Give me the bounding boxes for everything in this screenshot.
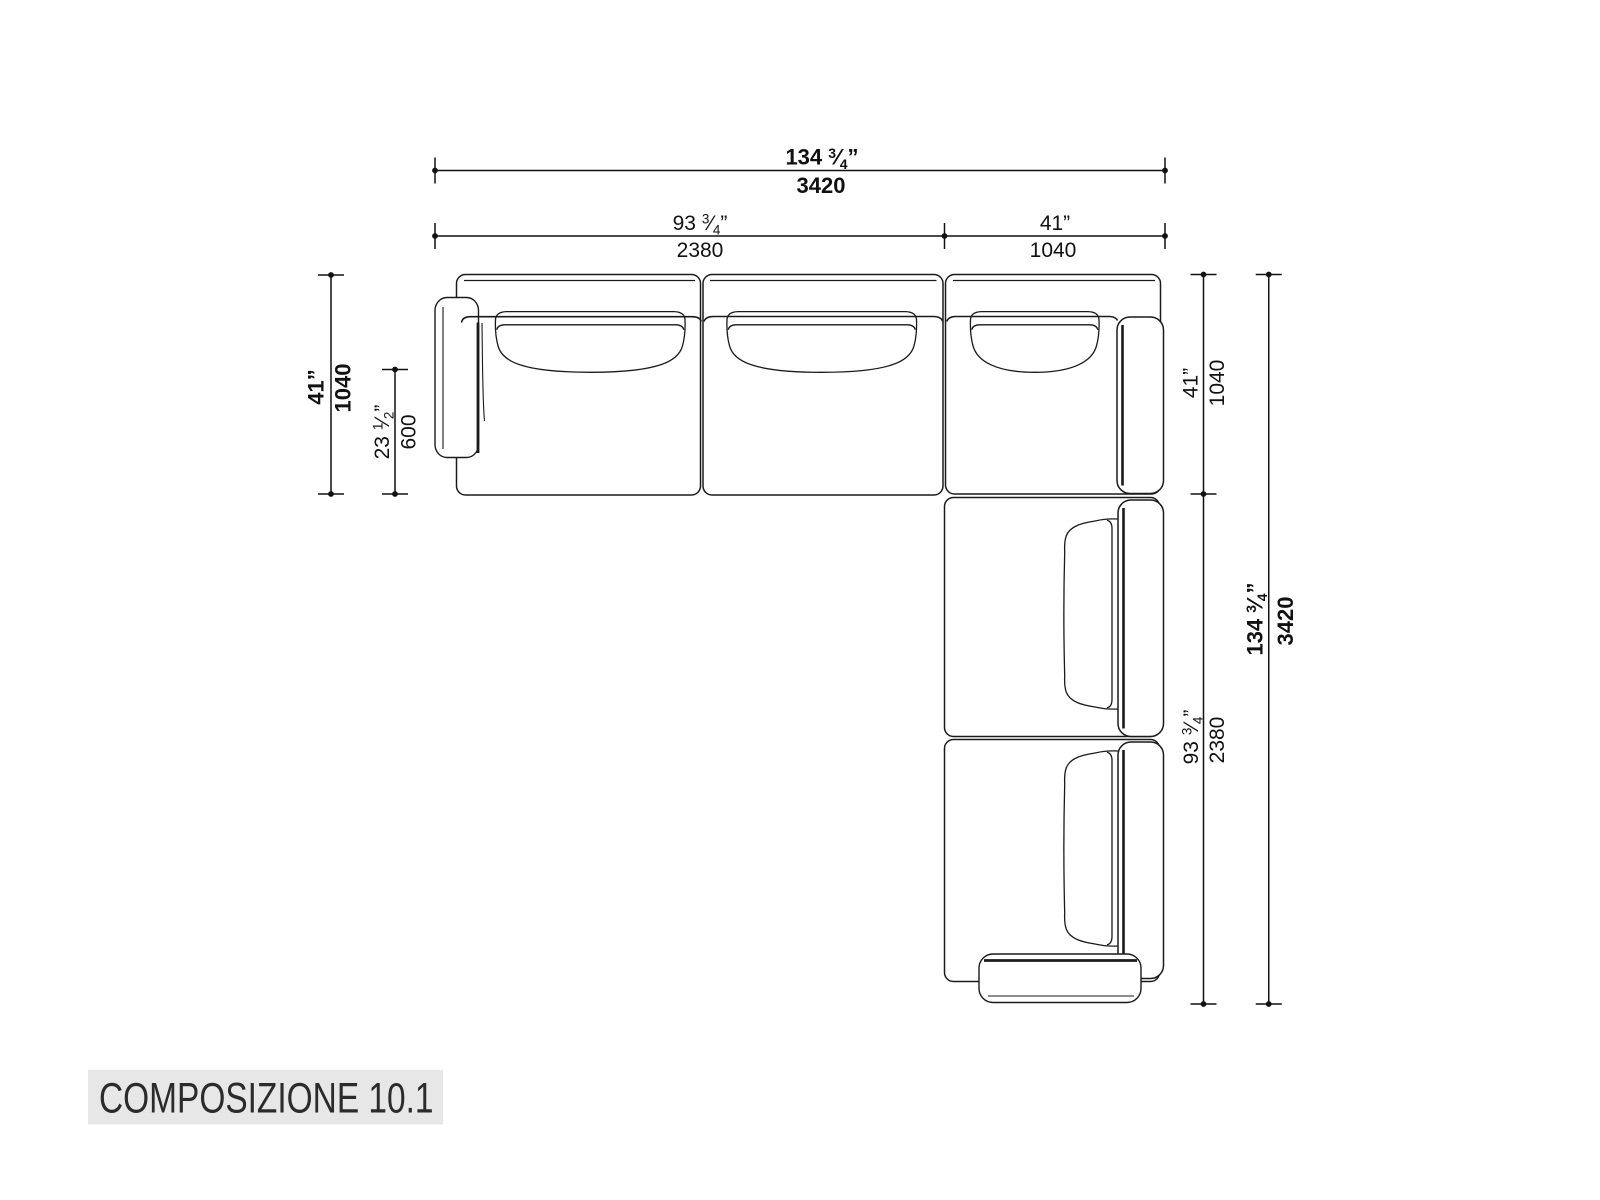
svg-text:1040: 1040 (331, 364, 356, 413)
svg-text:23 1⁄2”: 23 1⁄2” (371, 405, 397, 460)
svg-text:2380: 2380 (1206, 717, 1229, 764)
svg-text:41”: 41” (1040, 212, 1070, 235)
svg-text:600: 600 (398, 414, 421, 449)
svg-text:134 3⁄4”: 134 3⁄4” (1243, 582, 1271, 655)
svg-text:41”: 41” (1180, 368, 1203, 398)
svg-text:41”: 41” (304, 369, 329, 404)
svg-text:1040: 1040 (1030, 239, 1077, 262)
svg-text:COMPOSIZIONE 10.1: COMPOSIZIONE 10.1 (99, 1076, 434, 1123)
svg-text:134 3⁄4”: 134 3⁄4” (785, 145, 858, 173)
svg-text:3420: 3420 (797, 173, 846, 198)
svg-text:3420: 3420 (1273, 597, 1298, 646)
svg-text:2380: 2380 (677, 239, 724, 262)
svg-text:93 3⁄4”: 93 3⁄4” (1180, 710, 1206, 765)
svg-text:93 3⁄4”: 93 3⁄4” (673, 212, 728, 238)
svg-text:1040: 1040 (1206, 360, 1229, 407)
